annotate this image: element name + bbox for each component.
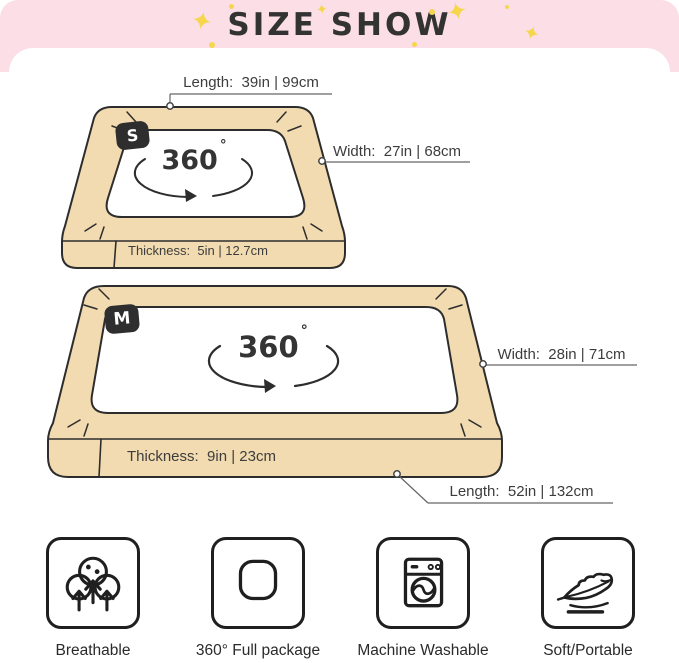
feature-label: Soft/Portable (543, 642, 633, 660)
degree-symbol: ° (220, 137, 227, 153)
degree-symbol: ° (301, 323, 308, 339)
feature-box (211, 537, 305, 629)
feature-box (541, 537, 635, 629)
feature-box (46, 537, 140, 629)
feature-machine-washable: Machine Washable (376, 537, 470, 660)
rotate-value: 360 (238, 330, 299, 364)
machine-washable-icon (390, 550, 456, 616)
breathable-icon (60, 550, 126, 616)
feature-breathable: Breathable (46, 537, 140, 660)
feature-full-package: 360° Full package (211, 537, 305, 660)
feature-label: Machine Washable (357, 642, 488, 660)
feature-label: Breathable (56, 642, 131, 660)
size-show-infographic: ✦ ✦ ✦ ✦ SIZE SHOW (0, 0, 679, 663)
small-length-label: Length: 39in | 99cm (160, 74, 342, 91)
rotate-value: 360 (161, 145, 217, 176)
feature-soft-portable: Soft/Portable (541, 537, 635, 660)
soft-portable-icon (555, 550, 621, 616)
rotate-360-label-medium: 360° (213, 330, 333, 364)
size-badge-m: M (104, 304, 140, 335)
features-row: Breathable 360° Full package (0, 537, 679, 660)
small-width-label: Width: 27in | 68cm (324, 143, 470, 160)
medium-thickness-label: Thickness: 9in | 23cm (127, 448, 276, 465)
rotate-360-label-small: 360° (144, 145, 244, 176)
small-thickness-label: Thickness: 5in | 12.7cm (128, 243, 268, 258)
full-package-icon (225, 550, 291, 616)
medium-width-label: Width: 28in | 71cm (486, 346, 637, 363)
feature-box (376, 537, 470, 629)
medium-length-label: Length: 52in | 132cm (430, 483, 613, 500)
feature-label: 360° Full package (196, 642, 320, 660)
